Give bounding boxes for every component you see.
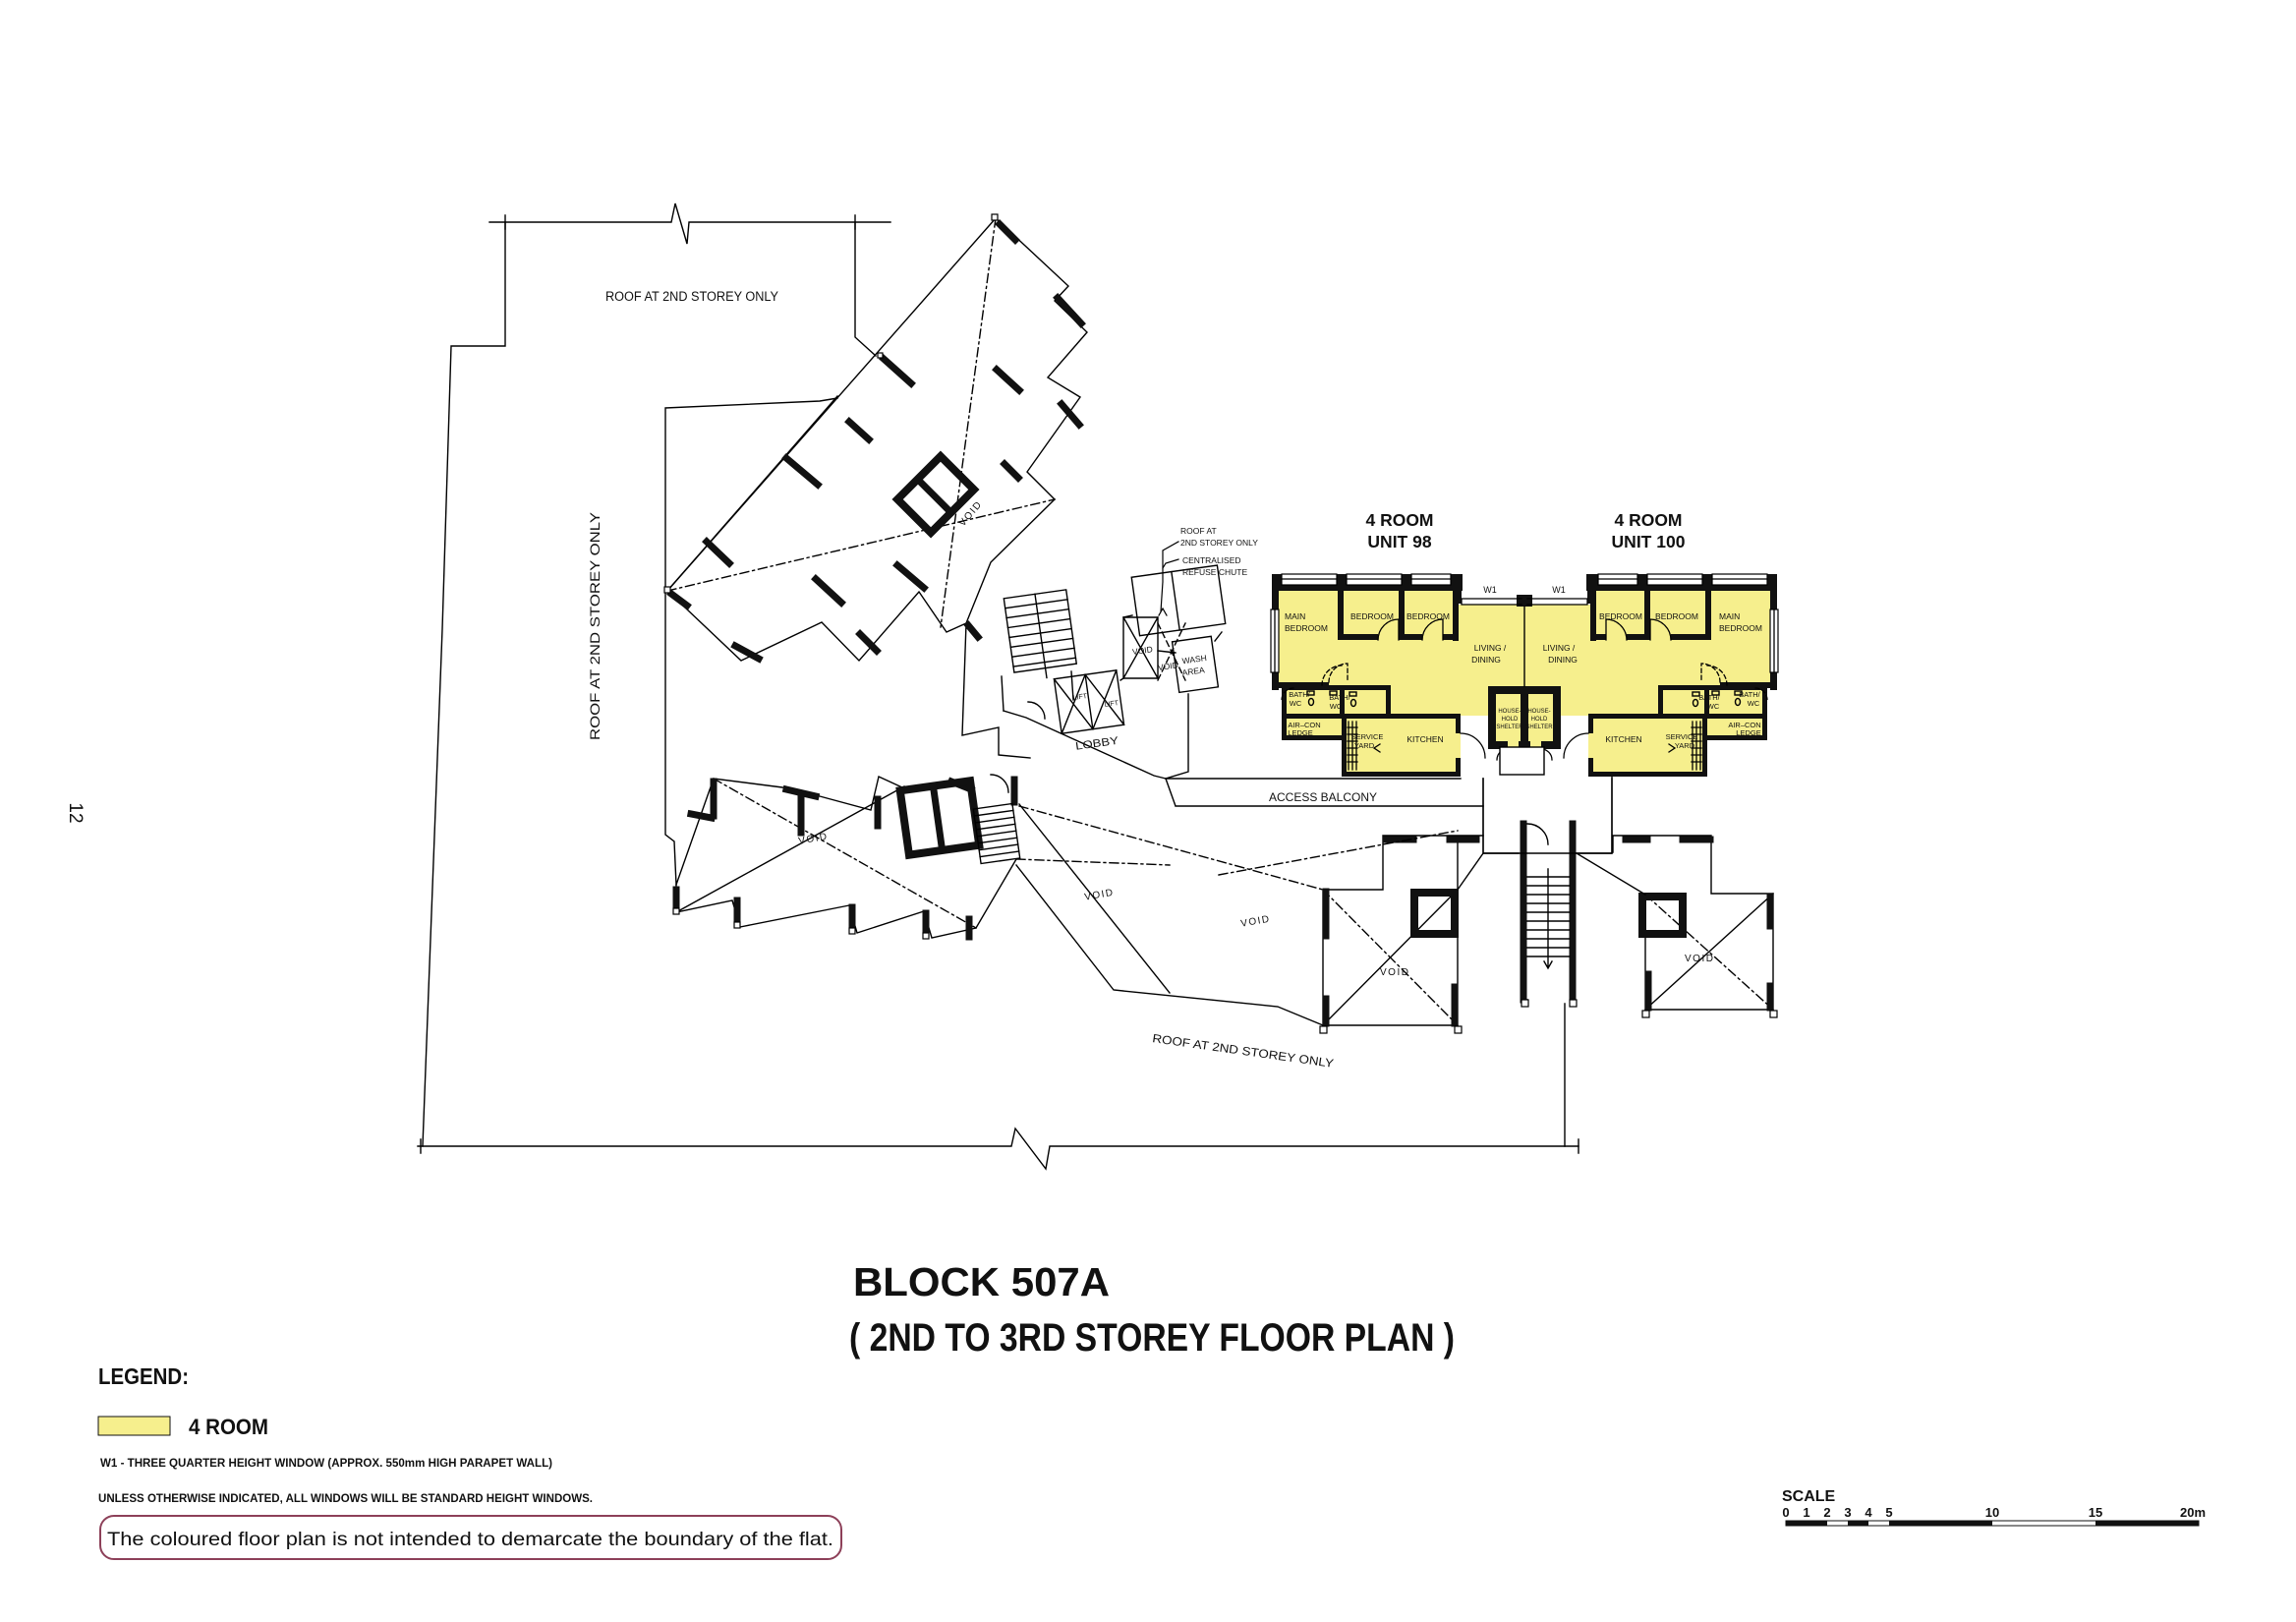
svg-text:MAIN: MAIN [1285, 611, 1305, 621]
svg-text:12: 12 [65, 802, 86, 823]
svg-text:3: 3 [1844, 1505, 1851, 1520]
svg-text:W1: W1 [1552, 585, 1566, 595]
svg-text:BATH/: BATH/ [1739, 690, 1760, 699]
svg-text:BATH/: BATH/ [1289, 690, 1310, 699]
svg-text:SCALE: SCALE [1782, 1488, 1836, 1505]
svg-text:W1: W1 [1483, 585, 1497, 595]
svg-text:The coloured floor plan is not: The coloured floor plan is not intended … [107, 1529, 833, 1550]
svg-text:BEDROOM: BEDROOM [1350, 611, 1394, 621]
svg-text:WC: WC [1330, 702, 1343, 711]
svg-text:5: 5 [1885, 1505, 1892, 1520]
svg-text:HOLD: HOLD [1531, 717, 1548, 723]
svg-text:4 ROOM: 4 ROOM [1365, 510, 1433, 530]
svg-text:MAIN: MAIN [1719, 611, 1740, 621]
svg-text:YARD: YARD [1354, 741, 1375, 750]
svg-text:DINING: DINING [1471, 655, 1501, 665]
svg-text:UNLESS OTHERWISE INDICATED, AL: UNLESS OTHERWISE INDICATED, ALL WINDOWS … [98, 1491, 593, 1505]
svg-text:KITCHEN: KITCHEN [1406, 734, 1443, 744]
svg-text:UNIT 100: UNIT 100 [1612, 532, 1686, 551]
svg-text:DINING: DINING [1548, 655, 1578, 665]
svg-text:0: 0 [1782, 1505, 1789, 1520]
svg-text:BEDROOM: BEDROOM [1655, 611, 1698, 621]
svg-text:ROOF AT: ROOF AT [1180, 526, 1217, 536]
svg-text:20m: 20m [2180, 1505, 2206, 1520]
svg-text:REFUSE CHUTE: REFUSE CHUTE [1182, 567, 1247, 577]
svg-text:2: 2 [1823, 1505, 1830, 1520]
svg-text:1: 1 [1803, 1505, 1809, 1520]
svg-text:HOUSE-: HOUSE- [1498, 709, 1521, 715]
svg-text:BEDROOM: BEDROOM [1285, 623, 1328, 633]
svg-text:WC: WC [1707, 702, 1720, 711]
svg-text:SHELTER: SHELTER [1525, 724, 1553, 730]
svg-text:HOUSE-: HOUSE- [1527, 709, 1550, 715]
svg-text:BEDROOM: BEDROOM [1599, 611, 1642, 621]
svg-text:2ND STOREY ONLY: 2ND STOREY ONLY [1180, 538, 1258, 548]
svg-text:LIVING /: LIVING / [1474, 643, 1507, 653]
svg-text:SERVICE: SERVICE [1351, 732, 1384, 741]
svg-text:KITCHEN: KITCHEN [1605, 734, 1641, 744]
svg-text:BEDROOM: BEDROOM [1719, 623, 1762, 633]
svg-text:BATH/: BATH/ [1329, 693, 1350, 702]
svg-text:WC: WC [1748, 699, 1760, 708]
svg-text:BEDROOM: BEDROOM [1406, 611, 1450, 621]
svg-text:4: 4 [1865, 1505, 1872, 1520]
svg-text:4 ROOM: 4 ROOM [1614, 510, 1682, 530]
svg-text:ROOF AT 2ND STOREY ONLY: ROOF AT 2ND STOREY ONLY [605, 289, 778, 304]
svg-text:VOID: VOID [1380, 967, 1409, 978]
svg-text:10: 10 [1985, 1505, 1999, 1520]
svg-text:( 2ND TO 3RD STOREY FLOOR PLAN: ( 2ND TO 3RD STOREY FLOOR PLAN ) [849, 1316, 1455, 1360]
svg-text:HOLD: HOLD [1502, 717, 1519, 723]
svg-text:W1 - THREE QUARTER HEIGHT WI: W1 - THREE QUARTER HEIGHT WINDOW (APPROX… [100, 1456, 552, 1470]
svg-text:ROOF AT 2ND STOREY ONLY: ROOF AT 2ND STOREY ONLY [588, 512, 603, 740]
svg-text:WC: WC [1290, 699, 1302, 708]
svg-text:BLOCK 507A: BLOCK 507A [853, 1259, 1110, 1304]
svg-text:CENTRALISED: CENTRALISED [1182, 555, 1241, 565]
svg-text:15: 15 [2089, 1505, 2102, 1520]
svg-text:SERVICE: SERVICE [1666, 732, 1698, 741]
svg-text:LEDGE: LEDGE [1736, 728, 1760, 737]
svg-text:YARD: YARD [1675, 741, 1695, 750]
svg-text:ACCESS BALCONY: ACCESS BALCONY [1269, 790, 1377, 804]
svg-text:BATH/: BATH/ [1698, 693, 1720, 702]
svg-text:LEGEND:: LEGEND: [98, 1363, 189, 1389]
svg-text:LIVING /: LIVING / [1543, 643, 1576, 653]
svg-text:4 ROOM: 4 ROOM [189, 1415, 268, 1439]
svg-text:SHELTER: SHELTER [1496, 724, 1523, 730]
svg-text:VOID: VOID [1685, 954, 1714, 964]
svg-text:LEDGE: LEDGE [1288, 728, 1312, 737]
svg-text:UNIT 98: UNIT 98 [1367, 532, 1431, 551]
